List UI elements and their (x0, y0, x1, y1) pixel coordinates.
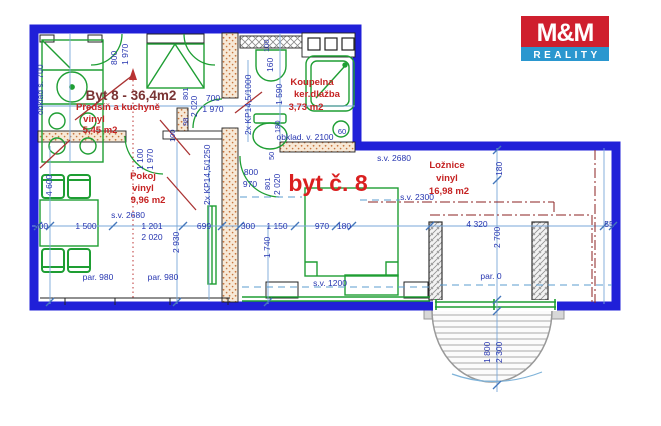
room-bath-area: 3,73 m2 (289, 102, 324, 113)
dim-label: 1 800 (482, 341, 492, 363)
dim-label: 2 020 (141, 232, 163, 242)
dim-label: 1 970 (145, 148, 155, 170)
balcony-floor (432, 310, 552, 382)
logo-subtitle-text: REALITY (533, 50, 600, 61)
mm-reality-logo: M&M REALITY (521, 16, 609, 61)
dim-label: obklad š. 700 (35, 64, 45, 115)
dim-label: 1 740 (262, 236, 272, 258)
room-pokoj-floor: vinyl (132, 183, 154, 194)
dim-label: 2 930 (171, 231, 181, 253)
dim-label: 800 (109, 51, 119, 65)
dim-label: s.v. 2680 (377, 153, 411, 163)
dim-label: 699 (197, 221, 211, 231)
dim-label: 300 (34, 221, 48, 231)
floor-plan-drawing: Byt 8 - 36,4m2Předsíň a kuchyněvinyl5,45… (0, 0, 661, 426)
unit-label: byt č. 8 (288, 170, 367, 196)
dim-label: 700 (206, 93, 220, 103)
room-bath-name: Koupelna (290, 77, 334, 88)
plan-title: Byt 8 - 36,4m2 (86, 88, 177, 103)
dim-label: 100 (168, 129, 177, 142)
room-loznice-floor: vinyl (436, 173, 458, 184)
dim-label: obklad. v. 2100 (276, 132, 333, 142)
dim-label: 180 (273, 120, 282, 133)
dim-label: 4 320 (466, 219, 488, 229)
dim-label: s.v. 2300 (400, 192, 434, 202)
dim-label: 2 300 (494, 341, 504, 363)
dim-label: 2 020 (272, 173, 282, 195)
dim-label: 970 (243, 179, 257, 189)
dim-label: 1 970 (120, 43, 130, 65)
dim-label: 2x KP14,5/1000 (243, 74, 253, 135)
dim-label: 100 (262, 39, 271, 52)
logo-brand-text: M&M (537, 19, 594, 47)
room-pokoj-name: Pokoj (130, 171, 156, 182)
dim-label: 98 (181, 118, 190, 126)
dim-label: s.v. 2680 (111, 210, 145, 220)
dim-label: 300 (241, 221, 255, 231)
room-loznice-name: Ložnice (429, 160, 464, 171)
dim-label: s.v. 1200 (313, 278, 347, 288)
room-hall-name: Předsíň a kuchyně (76, 102, 160, 113)
room-loznice-area: 16,98 m2 (429, 186, 469, 197)
dim-label: 1 150 (266, 221, 288, 231)
dim-label: 180 (337, 221, 351, 231)
dim-label: 970 (315, 221, 329, 231)
room-hall-area: 5,45 m2 (83, 125, 118, 136)
dim-label: 2x KP14,5/1250 (202, 144, 212, 205)
dim-label: 4 600 (44, 174, 54, 196)
dim-label: 1 970 (202, 104, 224, 114)
dim-label: 180 (494, 162, 504, 176)
dim-label: 1 100 (135, 148, 145, 170)
dim-label: 801 (263, 177, 272, 190)
dim-label: par. 0 (480, 271, 502, 281)
dim-label: 2 020 (189, 95, 199, 117)
room-hall-floor: vinyl (83, 114, 105, 125)
dim-label: 55 (604, 219, 614, 229)
floor-plan-page: Byt 8 - 36,4m2Předsíň a kuchyněvinyl5,45… (0, 0, 661, 426)
dim-label: 160 (265, 58, 275, 72)
bathroom-appliance-icons (308, 38, 354, 50)
dim-label: 801 (181, 87, 190, 100)
room-bath-floor: ker.dlažba (294, 89, 341, 100)
exterior-wall-outline (34, 29, 616, 306)
dim-label: 1 500 (75, 221, 97, 231)
dim-label: 2 700 (492, 226, 502, 248)
dim-label: par. 980 (83, 272, 114, 282)
dim-label: 800 (244, 167, 258, 177)
dim-label: 1 590 (274, 83, 284, 105)
dim-label: 50 (267, 152, 276, 160)
room-pokoj-area: 9,96 m2 (131, 195, 166, 206)
dim-label: par. 980 (148, 272, 179, 282)
dim-label: 1 201 (141, 221, 163, 231)
dim-label: 60 (338, 127, 346, 136)
